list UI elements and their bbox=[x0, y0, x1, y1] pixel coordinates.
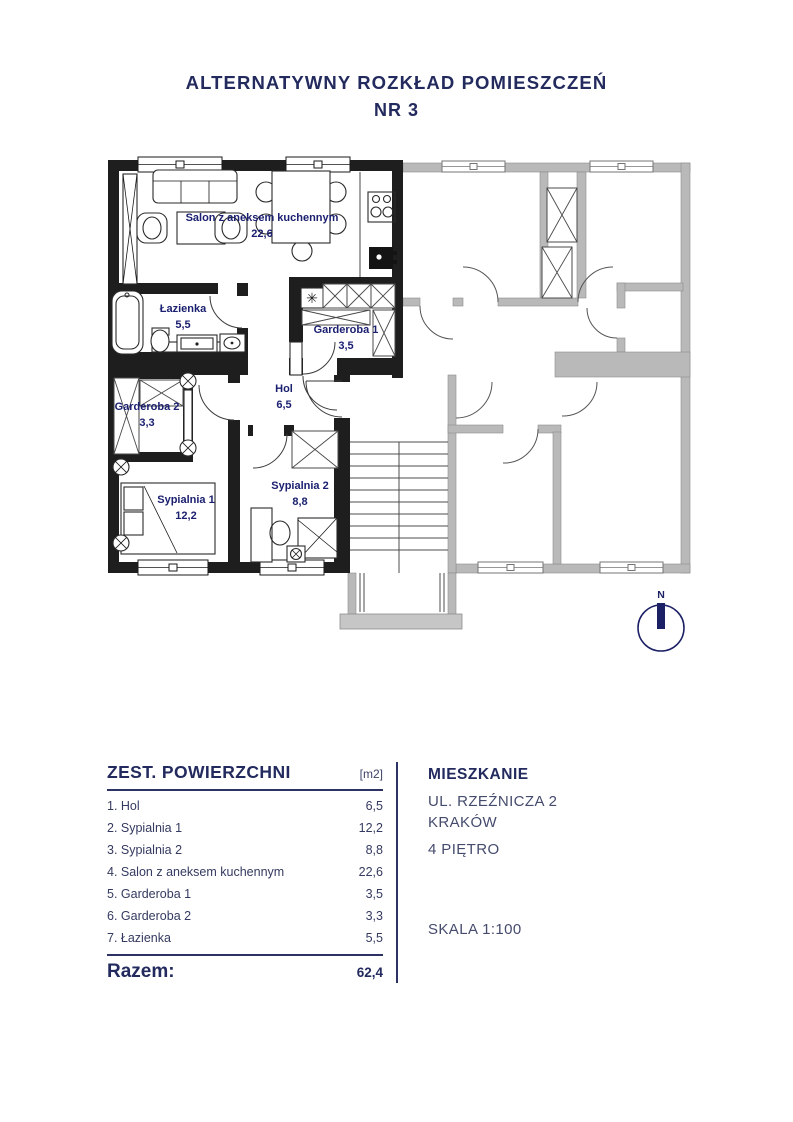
table-divider bbox=[107, 789, 383, 791]
sink-vanity-icon bbox=[177, 335, 217, 352]
desk-chair bbox=[270, 521, 290, 545]
table-row: 4. Salon z aneksem kuchennym 22,6 bbox=[107, 861, 383, 883]
compass-north-label: N bbox=[657, 589, 665, 601]
room-label-sypialnia1: Sypialnia 1 bbox=[157, 494, 214, 506]
row-value: 12,2 bbox=[359, 817, 383, 839]
nightstand bbox=[287, 546, 305, 562]
room-label-garderoba1: Garderoba 1 bbox=[314, 324, 379, 336]
info-block: MIESZKANIE UL. RZEŹNICZA 2 KRAKÓW 4 PIĘT… bbox=[428, 766, 557, 942]
room-label-sypialnia2: Sypialnia 2 bbox=[271, 480, 328, 492]
fridge-icon: ✳ bbox=[306, 290, 318, 306]
kitchen-cabinets: ✳ bbox=[301, 284, 395, 308]
stove-icon bbox=[368, 192, 395, 222]
window-icon bbox=[590, 161, 653, 172]
room-area-garderoba1: 3,5 bbox=[338, 340, 353, 352]
table-row: 3. Sypialnia 2 8,8 bbox=[107, 839, 383, 861]
info-floor: 4 PIĘTRO bbox=[428, 841, 557, 858]
washing-machine-icon bbox=[220, 334, 245, 352]
row-value: 22,6 bbox=[359, 861, 383, 883]
wardrobe-garderoba2-left bbox=[114, 378, 139, 454]
row-label: 7. Łazienka bbox=[107, 927, 171, 949]
row-label: 4. Salon z aneksem kuchennym bbox=[107, 861, 284, 883]
sofa bbox=[153, 170, 237, 203]
tv-cabinet bbox=[123, 174, 137, 284]
table-total-row: Razem: 62,4 bbox=[107, 956, 383, 983]
window-icon bbox=[286, 157, 350, 172]
table-title: ZEST. POWIERZCHNI bbox=[107, 762, 291, 783]
window-icon bbox=[442, 161, 505, 172]
table-unit-header: [m2] bbox=[360, 767, 383, 781]
bathtub-icon bbox=[112, 291, 143, 354]
area-table-header: ZEST. POWIERZCHNI [m2] bbox=[107, 762, 383, 783]
stairwell bbox=[350, 442, 448, 612]
room-area-sypialnia2: 8,8 bbox=[292, 496, 307, 508]
info-address-line1: UL. RZEŹNICZA 2 bbox=[428, 793, 557, 810]
room-area-hol: 6,5 bbox=[276, 399, 291, 411]
room-label-hol: Hol bbox=[275, 383, 293, 395]
room-area-garderoba2: 3,3 bbox=[139, 417, 154, 429]
row-value: 3,3 bbox=[366, 905, 383, 927]
room-area-sypialnia1: 12,2 bbox=[175, 510, 196, 522]
floor-plan-page: ALTERNATYWNY ROZKŁAD POMIESZCZEŃ NR 3 bbox=[0, 0, 793, 1122]
row-label: 6. Garderoba 2 bbox=[107, 905, 191, 927]
info-heading: MIESZKANIE bbox=[428, 766, 557, 784]
row-label: 2. Sypialnia 1 bbox=[107, 817, 182, 839]
table-row: 1. Hol 6,5 bbox=[107, 795, 383, 817]
window-icon bbox=[600, 562, 663, 573]
info-address-line2: KRAKÓW bbox=[428, 814, 557, 831]
kitchen-sink-icon bbox=[369, 247, 397, 269]
circle-cross-symbol bbox=[180, 440, 196, 456]
circle-cross-symbol bbox=[180, 373, 196, 389]
desk-sypialnia2 bbox=[251, 508, 272, 562]
toilet-icon bbox=[151, 328, 169, 352]
area-table: ZEST. POWIERZCHNI [m2] 1. Hol 6,5 2. Syp… bbox=[107, 762, 398, 983]
row-label: 5. Garderoba 1 bbox=[107, 883, 191, 905]
circle-cross-symbol bbox=[113, 535, 129, 551]
total-value: 62,4 bbox=[357, 965, 383, 980]
total-label: Razem: bbox=[107, 961, 175, 983]
table-row: 6. Garderoba 2 3,3 bbox=[107, 905, 383, 927]
row-label: 3. Sypialnia 2 bbox=[107, 839, 182, 861]
row-value: 5,5 bbox=[366, 927, 383, 949]
window-icon bbox=[138, 560, 208, 575]
circle-cross-symbol bbox=[113, 459, 129, 475]
info-scale: SKALA 1:100 bbox=[428, 921, 557, 938]
room-area-lazienka: 5,5 bbox=[175, 319, 190, 331]
row-value: 3,5 bbox=[366, 883, 383, 905]
wardrobe-garderoba1-top bbox=[302, 310, 370, 325]
window-icon bbox=[478, 562, 543, 573]
room-label-garderoba2: Garderoba 2 bbox=[115, 401, 180, 413]
row-label: 1. Hol bbox=[107, 795, 140, 817]
table-row: 2. Sypialnia 1 12,2 bbox=[107, 817, 383, 839]
room-label-salon: Salon z aneksem kuchennym bbox=[186, 212, 339, 224]
room-label-lazienka: Łazienka bbox=[160, 303, 207, 315]
row-value: 8,8 bbox=[366, 839, 383, 861]
row-value: 6,5 bbox=[366, 795, 383, 817]
room-area-salon: 22,6 bbox=[251, 228, 272, 240]
compass-icon: N bbox=[638, 589, 684, 651]
table-row: 5. Garderoba 1 3,5 bbox=[107, 883, 383, 905]
table-row: 7. Łazienka 5,5 bbox=[107, 927, 383, 949]
wardrobe-sypialnia2 bbox=[292, 431, 338, 468]
armchair bbox=[137, 213, 167, 243]
